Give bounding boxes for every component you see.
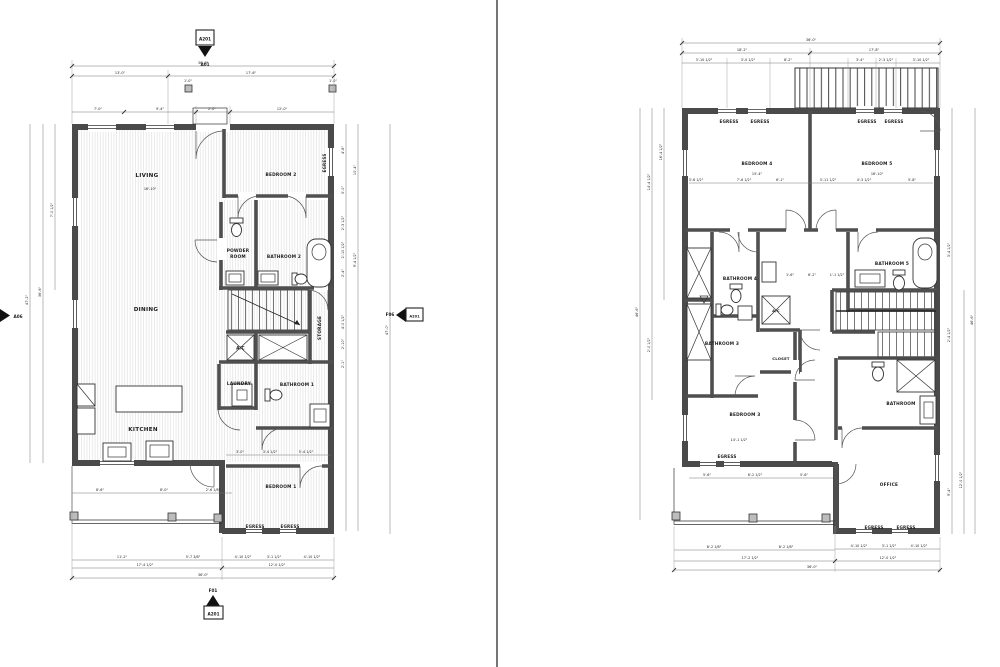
dim-bathrow-2: 1'-1 1/2" — [830, 273, 845, 277]
dim-officerow-2: 4'-10 1/2" — [911, 544, 928, 548]
room-label-office: OFFICE — [880, 482, 898, 488]
marker-bottom-ref: F01 — [209, 588, 218, 593]
marker-top-ref: A01 — [200, 62, 209, 67]
dim-top2-1-r: 17'-8" — [869, 48, 880, 52]
marker-left-ref: A06 — [13, 314, 22, 319]
dim-bottom2-1-l: 12'-0 1/2" — [269, 563, 286, 567]
dim-bed4-width: 15'-4" — [752, 172, 763, 176]
shower-stall — [897, 360, 935, 392]
egress-label-bedroom1-b: EGRESS — [280, 524, 299, 529]
dim-bedrow-2: 6'-1" — [776, 178, 784, 182]
egress-bedroom4-a: EGRESS — [719, 119, 738, 124]
room-label-bathroom4: BATHROOM 4 — [723, 276, 757, 282]
dim-porchrow-1: 8'-2 1/8" — [779, 545, 794, 549]
dim-overall-right-r: 46'-6" — [970, 314, 974, 325]
dim-bed3row-0: 5'-6" — [703, 473, 711, 477]
dim-bed3row-2: 5'-6" — [800, 473, 808, 477]
first-floor-plan: 1'-0" 1'-0" — [0, 30, 423, 619]
dim-bottom1-0-l: 11'-2" — [117, 555, 128, 559]
ac-closet-2: A/C — [762, 296, 790, 324]
room-label-living: LIVING — [135, 173, 158, 179]
dim-bottom1-3-l: 3'-1 1/2" — [267, 555, 282, 559]
dim-top3-4-r: 2'-3 1/2" — [879, 58, 894, 62]
egress-label-bedroom1-a: EGRESS — [245, 524, 264, 529]
linen-closet-upper — [687, 248, 711, 298]
dim-bottom1-2-l: 4'-10 1/2" — [235, 555, 252, 559]
section-marker-bottom: F01 A201 — [204, 588, 223, 619]
dim-top3-5-r: 3'-10 1/2" — [913, 58, 930, 62]
dim-bed1-1: 3'-4 1/2" — [263, 450, 278, 454]
room-label-ac2: A/C — [772, 308, 780, 313]
dim-overall-right-l: 47'-0" — [385, 324, 389, 335]
room-label-bathroom: BATHROOM — [886, 401, 915, 407]
dim-top3-0-r: 3'-10 1/2" — [696, 58, 713, 62]
dim-top3-2-r: 8'-2" — [784, 58, 792, 62]
dim-top3-0-l: 7'-0" — [94, 107, 102, 111]
marker-bottom-bubble: A201 — [208, 612, 220, 617]
dim-top3-1-r: 3'-0 1/2" — [741, 58, 756, 62]
dim-bed3-width: 14'-1 1/2" — [731, 438, 748, 442]
dim-leftcol2-1: 14'-4 1/2" — [647, 173, 651, 190]
dim-overall-top-r: 36'-0" — [806, 38, 817, 42]
marker-top-bubble: A201 — [199, 37, 211, 42]
dim-leftcol-1: 36'-6" — [38, 286, 42, 297]
dim-bedrow-4: 4'-3 1/2" — [857, 178, 872, 182]
dim-leftcol-0: 47'-2" — [25, 294, 29, 305]
dim-overall-bottom-l: 36'-0" — [198, 573, 209, 577]
dim-rightcol-2: 12'-0 1/2" — [959, 471, 963, 488]
room-label-bedroom4: BEDROOM 4 — [742, 161, 773, 167]
dim-rightcol-1: 2'-4 1/2" — [947, 327, 951, 342]
entry-stoop: 1'-0" 1'-0" — [184, 79, 337, 124]
hall-closet — [259, 335, 307, 360]
drawing-sheet: 1'-0" 1'-0" — [0, 0, 1000, 667]
dim-bedrow-3: 3'-11 1/2" — [820, 178, 837, 182]
dim-rightcol1-6: 2'-10" — [341, 338, 345, 349]
egress-bedroom3: EGRESS — [717, 454, 736, 459]
dim-bottom1-4-l: 4'-10 1/2" — [304, 555, 321, 559]
dim-top3-1-l: 9'-4" — [156, 107, 164, 111]
dim-post-right: 1'-0" — [329, 79, 337, 83]
dim-rightcol1-4: 2'-4" — [341, 269, 345, 277]
roof-deck-hatch — [795, 68, 938, 108]
dim-top2-1-l: 17'-6" — [246, 71, 257, 75]
floorplan-canvas: 1'-0" 1'-0" — [0, 0, 1000, 667]
room-label-dining: DINING — [134, 307, 159, 313]
room-label-powder-1: POWDER — [227, 248, 250, 254]
dim-bedrow-0: 3'-6 1/2" — [689, 178, 704, 182]
section-marker-right: F06 A201 — [386, 308, 423, 322]
egress-bedroom5-b: EGRESS — [884, 119, 903, 124]
room-label-kitchen: KITCHEN — [128, 427, 158, 433]
dim-rightcol-0: 3'-4 1/2" — [947, 242, 951, 257]
dim-porchrow-0: 8'-2 1/8" — [707, 545, 722, 549]
room-label-ac: A/C — [236, 346, 245, 352]
dim-top2-0-r: 18'-2" — [737, 48, 748, 52]
dim-overall-bottom-r: 36'-0" — [807, 565, 818, 569]
room-label-bathroom3: BATHROOM 3 — [705, 341, 739, 347]
dim-bottom2-0-l: 17'-4 1/2" — [137, 563, 154, 567]
dim-bottom1-1-l: 5'-7 3/8" — [186, 555, 201, 559]
egress-office-b: EGRESS — [896, 525, 915, 530]
room-label-bedroom5: BEDROOM 5 — [862, 161, 893, 167]
room-label-bathroom2: BATHROOM 2 — [267, 254, 301, 260]
room-label-bedroom2: BEDROOM 2 — [266, 172, 297, 178]
dim-rightcol2-0: 10'-4" — [353, 164, 357, 175]
room-label-bathroom1: BATHROOM 1 — [280, 382, 314, 388]
dim-rightcol2-1: 9'-4 1/2" — [353, 252, 357, 267]
room-label-laundry: LAUNDRY — [227, 381, 252, 387]
room-label-bedroom1: BEDROOM 1 — [266, 484, 297, 490]
dim-top2-0-l: 13'-0" — [115, 71, 126, 75]
dim-office-total: 12'-0 1/2" — [880, 556, 897, 560]
egress-label-bedroom2: EGRESS — [322, 153, 327, 172]
dim-leftcol2-0: 16'-4 1/2" — [659, 143, 663, 160]
dim-bathrow-1: 6'-2" — [808, 273, 816, 277]
dim-rightcol1-0: 4'-8" — [341, 146, 345, 154]
dim-rightcol1-3: 2'-10 1/2" — [341, 241, 345, 258]
dim-porch-total: 17'-2 1/2" — [742, 556, 759, 560]
dim-rightcol-3: 9'-4" — [947, 488, 951, 496]
egress-bedroom4-b: EGRESS — [750, 119, 769, 124]
dim-officerow-0: 4'-10 1/2" — [851, 544, 868, 548]
dim-rightcol1-2: 2'-3 1/2" — [341, 215, 345, 230]
dim-living-width: 16'-10" — [144, 187, 157, 191]
laundry-fixtures — [232, 384, 252, 406]
room-label-storage: STORAGE — [317, 316, 323, 340]
dim-bed3row-1: 6'-2 1/2" — [748, 473, 763, 477]
stair-second-floor — [836, 292, 936, 358]
marker-right-bubble: A201 — [409, 315, 420, 319]
dim-top3-2-l: 2'-0" — [208, 107, 216, 111]
dim-leftcol2-2: 46'-6" — [635, 306, 639, 317]
dim-bedrow-1: 7'-6 1/2" — [737, 178, 752, 182]
dim-leftcol-2: 7'-0 1/2" — [50, 202, 54, 217]
dim-bathrow-0: 1'-6" — [786, 273, 794, 277]
room-label-bedroom3: BEDROOM 3 — [730, 412, 761, 418]
dim-top3-3-l: 12'-0" — [277, 107, 288, 111]
marker-right-ref: F06 — [386, 312, 395, 317]
dim-leftcol2-3: 2'-0 1/2" — [647, 337, 651, 352]
second-floor-plan: A/C — [635, 38, 975, 572]
section-marker-left: A06 — [0, 309, 23, 322]
dim-post-left: 1'-0" — [184, 79, 192, 83]
dim-bed1-0: 3'-0" — [236, 450, 244, 454]
dim-rightcol1-7: 2'-1" — [341, 360, 345, 368]
egress-office-a: EGRESS — [864, 525, 883, 530]
room-label-closet: CLOSET — [772, 356, 790, 361]
dim-top3-3-r: 3'-4" — [856, 58, 864, 62]
room-label-powder-2: ROOM — [230, 254, 246, 260]
dim-porch-2: 2'-6 1/8" — [206, 488, 221, 492]
stair-first-floor — [228, 290, 308, 330]
room-label-bathroom5: BATHROOM 5 — [875, 261, 909, 267]
dim-rightcol1-1: 5'-0" — [341, 186, 345, 194]
dim-bedrow-5: 5'-8" — [908, 178, 916, 182]
front-porch — [70, 466, 222, 524]
dim-bed5-width: 16'-10" — [871, 172, 884, 176]
egress-bedroom5-a: EGRESS — [857, 119, 876, 124]
dim-officerow-1: 3'-1 1/2" — [882, 544, 897, 548]
dim-rightcol1-5: 4'-0 1/2" — [341, 314, 345, 329]
dim-porch-1: 8'-0" — [160, 488, 168, 492]
ac-closet: A/C — [227, 335, 254, 360]
dim-porch-0: 8'-6" — [96, 488, 104, 492]
dim-bed1-2: 5'-4 1/2" — [299, 450, 314, 454]
linen-closet-lower — [687, 304, 711, 360]
